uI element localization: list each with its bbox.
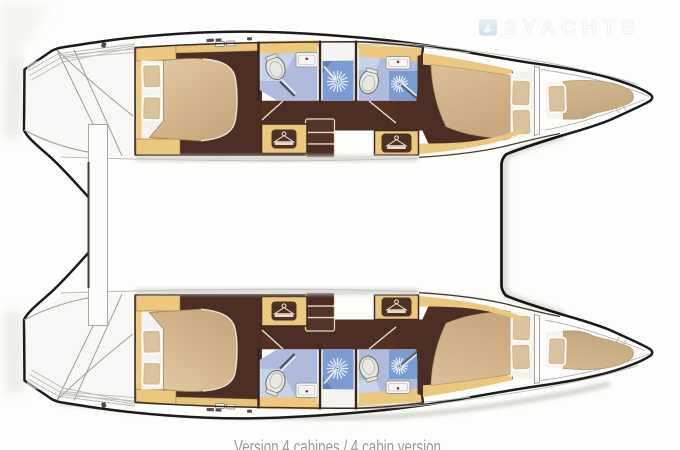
svg-text:2YACHTS: 2YACHTS	[505, 16, 641, 39]
svg-text:Version 4 cabines / 4 cabin ve: Version 4 cabines / 4 cabin version	[234, 437, 441, 450]
